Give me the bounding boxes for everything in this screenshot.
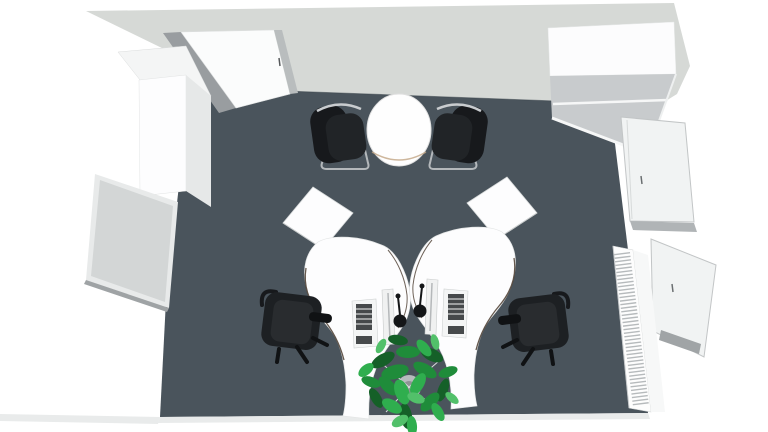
wardrobe-side <box>186 75 211 207</box>
window-lower-handle <box>672 284 673 292</box>
wardrobe-front <box>139 75 186 196</box>
lamp-head <box>394 315 407 328</box>
chair-seat <box>270 299 315 346</box>
door-handle <box>279 58 280 66</box>
window-upper-handle <box>641 176 642 184</box>
meeting-table[interactable] <box>367 94 431 166</box>
window-upper[interactable] <box>621 117 697 232</box>
room-planner-viewport <box>0 0 768 432</box>
chair-seat <box>324 112 368 163</box>
keyboard-numpad <box>356 336 372 344</box>
lamp-base <box>396 294 401 299</box>
keyboard[interactable] <box>352 299 378 348</box>
window-upper-glass <box>621 117 694 222</box>
sideboard-back <box>548 22 676 76</box>
keyboard-keys <box>356 304 372 330</box>
